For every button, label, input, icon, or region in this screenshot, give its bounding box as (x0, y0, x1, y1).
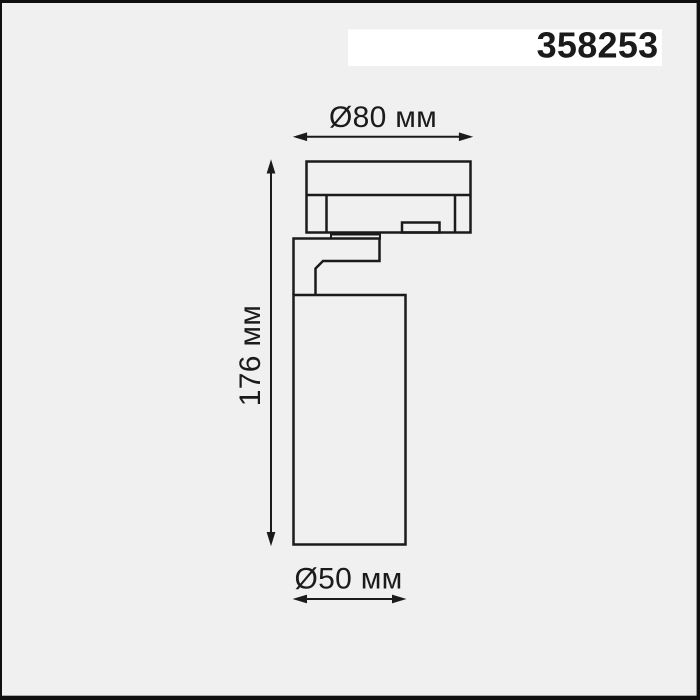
svg-text:176 мм: 176 мм (234, 305, 267, 406)
svg-text:Ø80 мм: Ø80 мм (329, 101, 437, 134)
svg-text:Ø50 мм: Ø50 мм (294, 563, 402, 596)
svg-text:358253: 358253 (537, 25, 659, 66)
